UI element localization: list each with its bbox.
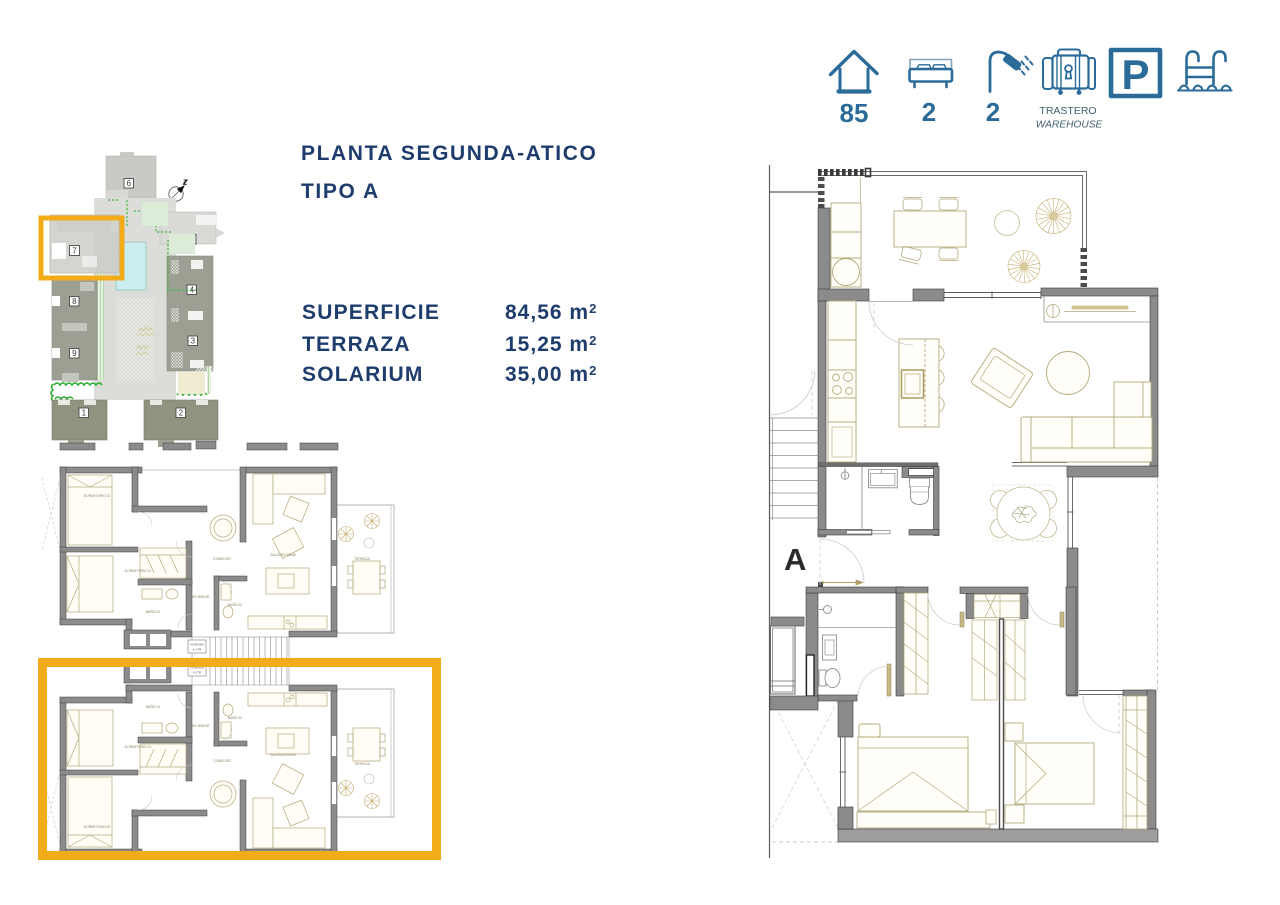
svg-text:COMEDOR: COMEDOR — [213, 759, 231, 763]
svg-text:1: 1 — [82, 409, 87, 418]
svg-text:A-1TR: A-1TR — [193, 648, 203, 652]
svg-text:SALÓN/COCINA: SALÓN/COCINA — [270, 552, 296, 557]
svg-text:8: 8 — [72, 297, 77, 306]
svg-text:BAÑO 02: BAÑO 02 — [228, 715, 242, 720]
svg-text:VIVIENDA: VIVIENDA — [190, 643, 204, 647]
svg-text:2: 2 — [922, 97, 936, 127]
svg-text:COMEDOR: COMEDOR — [213, 557, 231, 561]
svg-text:WAREHOUSE: WAREHOUSE — [1036, 120, 1103, 131]
svg-text:DORMITORIO 02: DORMITORIO 02 — [84, 825, 111, 829]
svg-text:DORMITORIO 01: DORMITORIO 01 — [125, 569, 152, 573]
svg-text:DORMITORIO 02: DORMITORIO 02 — [84, 494, 111, 498]
svg-text:SALÓN/COCINA: SALÓN/COCINA — [270, 752, 296, 757]
svg-text:2: 2 — [986, 97, 1000, 127]
svg-text:3: 3 — [191, 337, 196, 346]
svg-text:TERRAZA: TERRAZA — [354, 762, 371, 766]
svg-text:A: A — [784, 542, 806, 577]
svg-text:DORMITORIO 01: DORMITORIO 01 — [125, 745, 152, 749]
svg-text:9: 9 — [72, 349, 77, 358]
svg-text:RECIBIDOR: RECIBIDOR — [191, 595, 210, 599]
svg-text:85: 85 — [840, 98, 869, 128]
svg-text:BAÑO 02: BAÑO 02 — [228, 602, 242, 607]
svg-text:A-1TR: A-1TR — [193, 671, 203, 675]
svg-text:2: 2 — [179, 409, 184, 418]
svg-text:TRASTERO: TRASTERO — [1039, 105, 1096, 117]
svg-text:BAÑO 01: BAÑO 01 — [146, 609, 160, 614]
svg-text:RECIBIDOR: RECIBIDOR — [191, 724, 210, 728]
svg-text:BAÑO 01: BAÑO 01 — [146, 704, 160, 709]
svg-text:7: 7 — [72, 247, 77, 256]
svg-text:6: 6 — [127, 179, 132, 188]
svg-text:TERRAZA: TERRAZA — [354, 557, 371, 561]
svg-text:P: P — [1121, 51, 1149, 98]
